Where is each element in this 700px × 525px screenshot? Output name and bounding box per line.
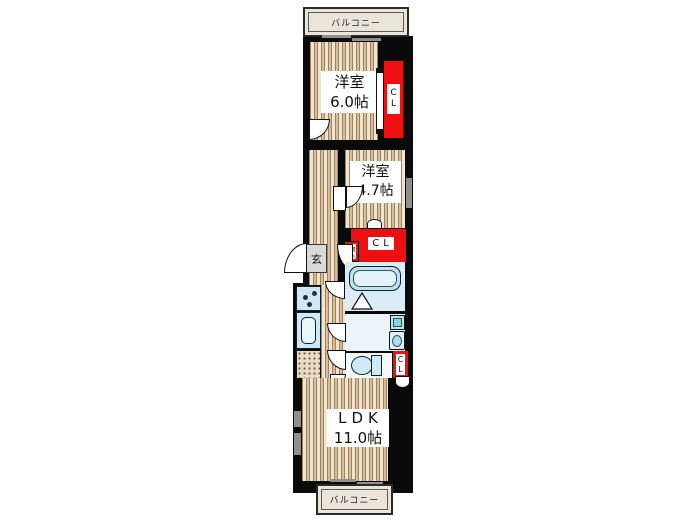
- mid-closet-text: CL: [372, 238, 393, 249]
- ldk-label: LDK 11.0帖: [327, 409, 389, 447]
- floor-plan: バルコニー 洋室 6.0帖 CL 洋室 4.7帖 CL 物入 玄: [0, 0, 700, 525]
- sliding-window-bottom-icon: [330, 479, 356, 482]
- balcony-top-label: バルコニー: [331, 16, 381, 29]
- sliding-window-top-icon: [322, 35, 351, 38]
- balcony-bottom: バルコニー: [316, 484, 393, 515]
- room2-closet-door-arc-icon: [367, 219, 382, 229]
- ldk-window-icon: [294, 433, 301, 455]
- room2-size: 4.7帖: [357, 182, 393, 201]
- ldk-window-icon: [294, 411, 301, 427]
- room1-name: 洋室: [334, 72, 364, 92]
- stove: [296, 286, 321, 311]
- ldk-size: 11.0帖: [334, 428, 382, 448]
- room2-name: 洋室: [362, 163, 390, 182]
- balcony-bottom-label: バルコニー: [330, 493, 380, 506]
- toilet-tank: [371, 355, 382, 376]
- closet-door-strip: [376, 68, 384, 134]
- burner-icon: [312, 291, 317, 296]
- entrance-box: 玄: [306, 244, 327, 273]
- bath-door-triangle-icon: [351, 292, 373, 310]
- washbasin-bowl-icon: [392, 335, 402, 347]
- ldk-name: LDK: [333, 408, 383, 428]
- toilet-closet-text: CL: [396, 355, 405, 375]
- toilet-bowl-icon: [351, 356, 373, 375]
- room2-window-icon: [406, 178, 412, 208]
- ldk-door-arc-icon: [395, 376, 410, 388]
- closet-door-mark: [377, 69, 383, 73]
- bathtub-inner: [353, 270, 397, 287]
- closet-door-mark: [377, 129, 383, 133]
- room1-label: 洋室 6.0帖: [321, 71, 378, 113]
- room1-closet-text: CL: [389, 88, 399, 110]
- burner-icon: [303, 295, 308, 300]
- room1-closet-label: CL: [387, 84, 400, 114]
- burner-icon: [307, 302, 312, 307]
- room1-size: 6.0帖: [330, 92, 369, 112]
- entrance-text: 玄: [311, 251, 322, 267]
- room2-door-leaf: [333, 186, 346, 211]
- balcony-top: バルコニー: [303, 7, 409, 37]
- front-door-arc-icon: [284, 243, 307, 273]
- washing-machine-inner: [393, 318, 402, 327]
- mid-closet-label: CL: [368, 237, 394, 250]
- refrigerator-space: [296, 350, 321, 379]
- kitchen-sink: [301, 317, 316, 344]
- toilet-closet-label: CL: [396, 354, 405, 375]
- sliding-window-top-icon: [352, 38, 381, 41]
